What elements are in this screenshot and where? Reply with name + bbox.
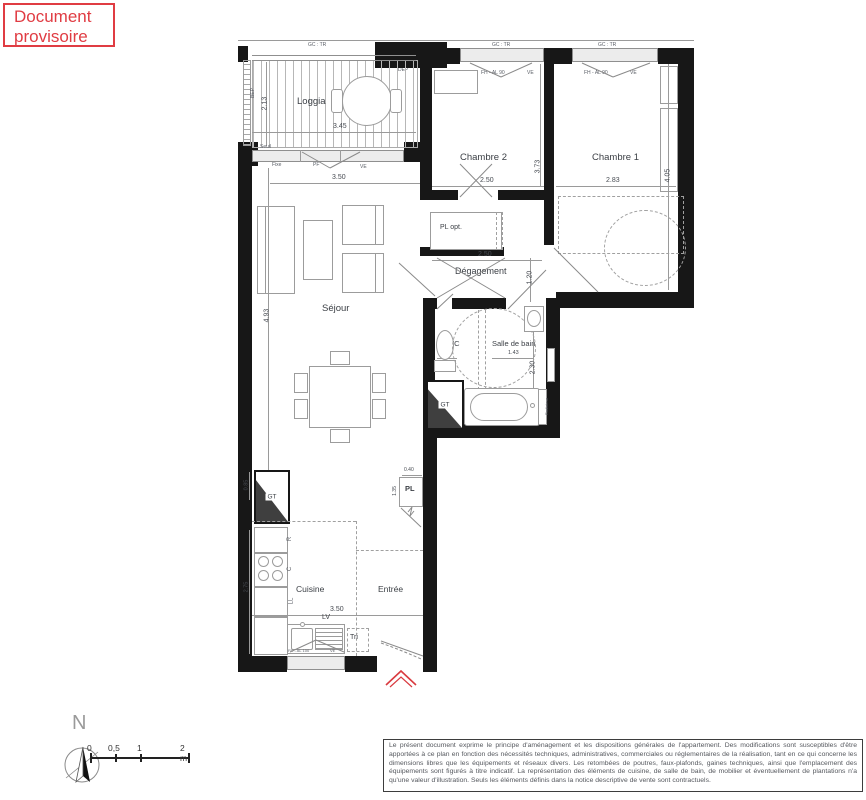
dim-sejour-depth: 4.93 [263, 309, 270, 323]
dim-pl-width: 0.40 [404, 467, 414, 473]
dim-pl-height: 1.35 [392, 486, 398, 496]
window-ve-label: VE [527, 70, 534, 76]
hob-burner [258, 556, 269, 567]
gt-label: GT [265, 494, 278, 501]
dining-chair [372, 373, 386, 393]
dim-line [252, 615, 423, 616]
room-label-loggia: Loggia [297, 96, 326, 107]
chambre1-turning-circle [604, 210, 686, 286]
cuisine-cabinet [254, 617, 288, 655]
room-separator [356, 521, 357, 656]
scale-tick [140, 754, 142, 762]
dim-line [268, 168, 269, 478]
loggia-chair [390, 89, 402, 113]
dim-chambre2-width: 2.50 [480, 177, 494, 184]
dim-cuisine-left: 2.75 [243, 582, 249, 593]
floor-plan-page: { "stamp": {"line1": "Document", "line2"… [0, 0, 866, 800]
hob-burner [258, 570, 269, 581]
cuisine-washer [254, 587, 288, 617]
sink-drainboard [315, 628, 343, 650]
entrance-door-leaf [381, 641, 423, 656]
sofa-line [265, 207, 266, 293]
entrance-door-arc [381, 643, 421, 659]
entrance-arrow-icon [386, 671, 416, 687]
fridge-label: R [287, 537, 293, 541]
dim-line [556, 186, 676, 187]
scale-label-05: 0,5 [108, 743, 120, 753]
door-swing-wc [437, 294, 453, 309]
pl-opt-label: PL opt. [440, 224, 462, 231]
sejour-sofa [257, 206, 295, 294]
gt-duct-sdb: GT [426, 380, 464, 430]
bathtub-inner [470, 393, 528, 421]
loggia-table [342, 76, 392, 126]
window-label: FH - AL 90 [584, 70, 608, 76]
wall-segment [678, 48, 694, 308]
top-rail-line [238, 40, 694, 41]
dim-loggia-width: 3.45 [333, 123, 347, 130]
wall-segment [447, 48, 460, 64]
wc-toilet-tank [434, 360, 456, 372]
dim-bay: 3.50 [332, 174, 346, 181]
wall-segment [544, 195, 554, 245]
dining-chair [330, 351, 350, 365]
gt-duct-cuisine: GT [254, 470, 290, 524]
dining-chair [372, 399, 386, 419]
sejour-armchair [342, 205, 384, 245]
scale-tick [115, 754, 117, 762]
room-label-chambre2: Chambre 2 [460, 152, 507, 163]
gt-label: GT [438, 402, 451, 409]
wall-segment [544, 48, 572, 64]
window-mullion [340, 150, 341, 162]
stamp-line2: provisoire [14, 27, 113, 47]
north-compass-icon [65, 747, 99, 782]
disclaimer-box: Le présent document exprime le principe … [383, 739, 863, 792]
window-bay-sejour [252, 150, 404, 162]
chambre1-wardrobe [660, 66, 678, 104]
dining-chair [294, 399, 308, 419]
room-label-cuisine: Cuisine [296, 584, 324, 594]
wall-segment [423, 298, 437, 309]
dim-chambre1-depth: 4.05 [664, 169, 671, 183]
scale-tick [188, 753, 190, 763]
wall-segment [420, 60, 432, 200]
room-separator [356, 550, 423, 551]
window-mullion [300, 150, 301, 162]
room-label-sejour: Séjour [322, 303, 349, 314]
wall-segment [345, 656, 377, 672]
window-cuisine [287, 656, 345, 670]
dim-line [432, 186, 544, 187]
door-swing-symbol [408, 507, 414, 516]
window-label: FH - AL 100 [288, 648, 309, 653]
scale-label-1: 1 [137, 743, 142, 753]
loggia-chair [331, 89, 343, 113]
dining-chair [294, 373, 308, 393]
dim-line [270, 183, 420, 184]
dim-line [402, 475, 422, 476]
disclaimer-text: Le présent document exprime le principe … [389, 742, 857, 784]
dim-gt: 0.85 [243, 480, 249, 491]
door-swing-chambre1 [554, 248, 598, 292]
compass-north-label: N [72, 712, 86, 735]
window-chambre2 [460, 48, 544, 62]
pl-opt-closet [430, 212, 502, 250]
dim-chambre1-width: 2.83 [606, 177, 620, 184]
stamp-line1: Document [14, 7, 113, 27]
hob-burner [272, 556, 283, 567]
wall-segment [423, 438, 437, 672]
room-separator [252, 521, 356, 522]
window-ve-label: VE [630, 70, 637, 76]
dim-line [432, 260, 542, 261]
wall-segment [544, 64, 554, 195]
lv-label: LV [322, 614, 330, 621]
wall-segment [420, 190, 458, 200]
radiateur-label: Radiateur [544, 398, 549, 415]
chambre2-furniture [434, 70, 478, 94]
room-label-degagement: Dégagement [455, 266, 507, 276]
dim-chambre2-depth: 3.73 [534, 160, 541, 174]
armchair-line [375, 206, 376, 244]
sejour-armchair [342, 253, 384, 293]
loggia-rail [252, 55, 416, 61]
scale-label-2m: 2 m [180, 743, 187, 763]
bathtub-drain [530, 403, 535, 408]
window-chambre1 [572, 48, 658, 62]
wall-segment [556, 292, 694, 308]
armchair-line [375, 254, 376, 292]
hob-burner [272, 570, 283, 581]
door-swing-degagement [437, 258, 505, 298]
pl-opt-rail [496, 212, 503, 250]
dim-cuisine-width: 3.50 [330, 606, 344, 613]
door-swing-pl [401, 508, 421, 527]
provisional-stamp: Document provisoire [3, 3, 115, 47]
seuil-label: Seuil [260, 144, 271, 150]
scale-tick [90, 753, 92, 763]
sejour-coffee-table [303, 220, 333, 280]
dim-degagement-depth: 1.20 [526, 271, 533, 285]
loggia-drain-strip [243, 60, 251, 146]
room-label-chambre1: Chambre 1 [592, 152, 639, 163]
ve-label: VE [360, 164, 367, 170]
washer-label: LL [288, 598, 294, 605]
gc-tr-label: GC : TR [308, 42, 326, 48]
radiator [547, 348, 555, 382]
dim-loggia-depth: 2.13 [261, 97, 268, 111]
dining-chair [330, 429, 350, 443]
wall-segment [238, 656, 287, 672]
dim-line [252, 132, 416, 133]
window-ve-label: VE [330, 648, 335, 653]
door-swing-sejour [399, 263, 435, 296]
pl-label: PL [405, 484, 415, 493]
dim-degagement-width: 2.50 [478, 251, 492, 258]
scale-label-0: 0 [87, 743, 92, 753]
hob-label: C [287, 567, 293, 571]
dining-table [309, 366, 371, 428]
washbasin-bowl [527, 310, 541, 327]
sink-faucet [300, 622, 305, 627]
pf-label: PF [313, 162, 319, 168]
fixe-label: Fixe [272, 162, 281, 168]
cuisine-fridge [254, 527, 288, 553]
bep-label: BEP [250, 88, 256, 98]
window-label: FH - AL 90 [481, 70, 505, 76]
room-label-entree: Entrée [378, 584, 403, 594]
sink-basin [291, 628, 313, 650]
